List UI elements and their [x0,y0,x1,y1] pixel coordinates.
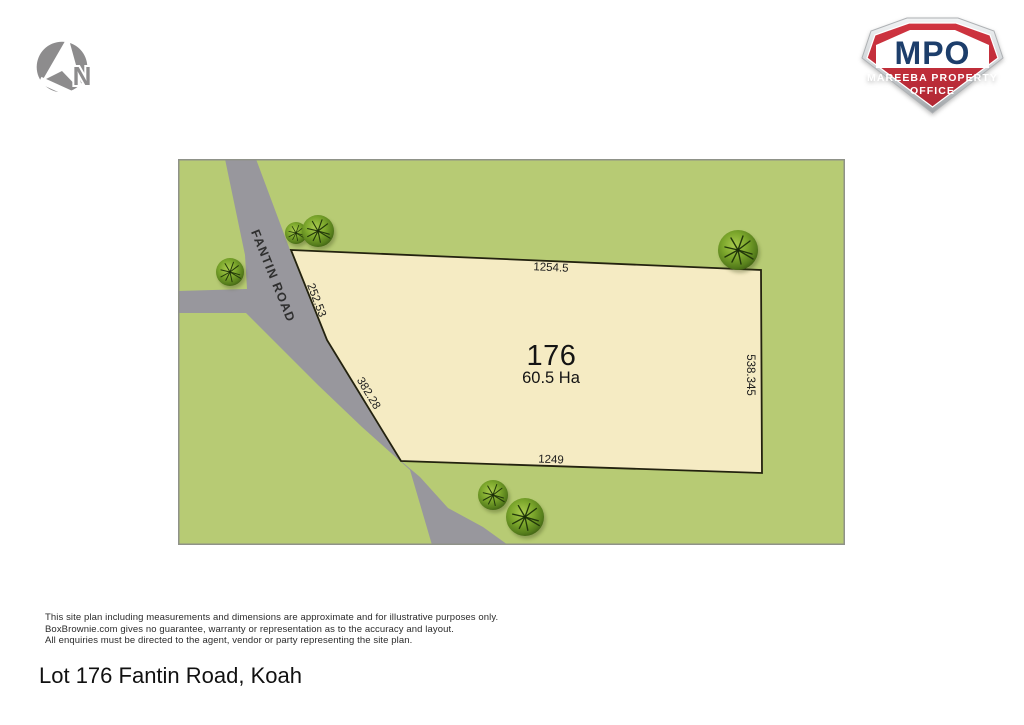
logo-line1: MAREEBA PROPERTY [867,72,998,84]
site-plan-page: N MPO MAREEBA PROPERTY OFFICE [0,0,1024,725]
tree-icon [506,498,544,536]
tree-icon [216,258,244,286]
dim-top-label: 1254.5 [533,261,569,274]
disclaimer-line: All enquiries must be directed to the ag… [45,635,498,647]
site-plan-map: 1254.5 1249 538.345 252.53 382.28 176 60… [178,159,845,545]
dim-bottom-label: 1249 [538,454,564,467]
page-title: Lot 176 Fantin Road, Koah [39,663,302,689]
tree-icon [718,230,758,270]
disclaimer-block: This site plan including measurements an… [45,612,498,647]
logo-acronym: MPO [895,35,971,71]
north-label: N [73,61,92,91]
mpo-logo-badge: MPO MAREEBA PROPERTY OFFICE [850,8,1010,120]
logo-line2: OFFICE [910,85,955,97]
disclaimer-line: BoxBrownie.com gives no guarantee, warra… [45,624,498,636]
dim-right-label: 538.345 [744,354,756,396]
tree-icon [302,215,334,247]
lot-number-label: 176 [527,340,577,372]
tree-icon [478,480,508,510]
lot-area-label: 60.5 Ha [522,369,581,387]
north-compass-icon: N [27,32,103,108]
disclaimer-line: This site plan including measurements an… [45,612,498,624]
